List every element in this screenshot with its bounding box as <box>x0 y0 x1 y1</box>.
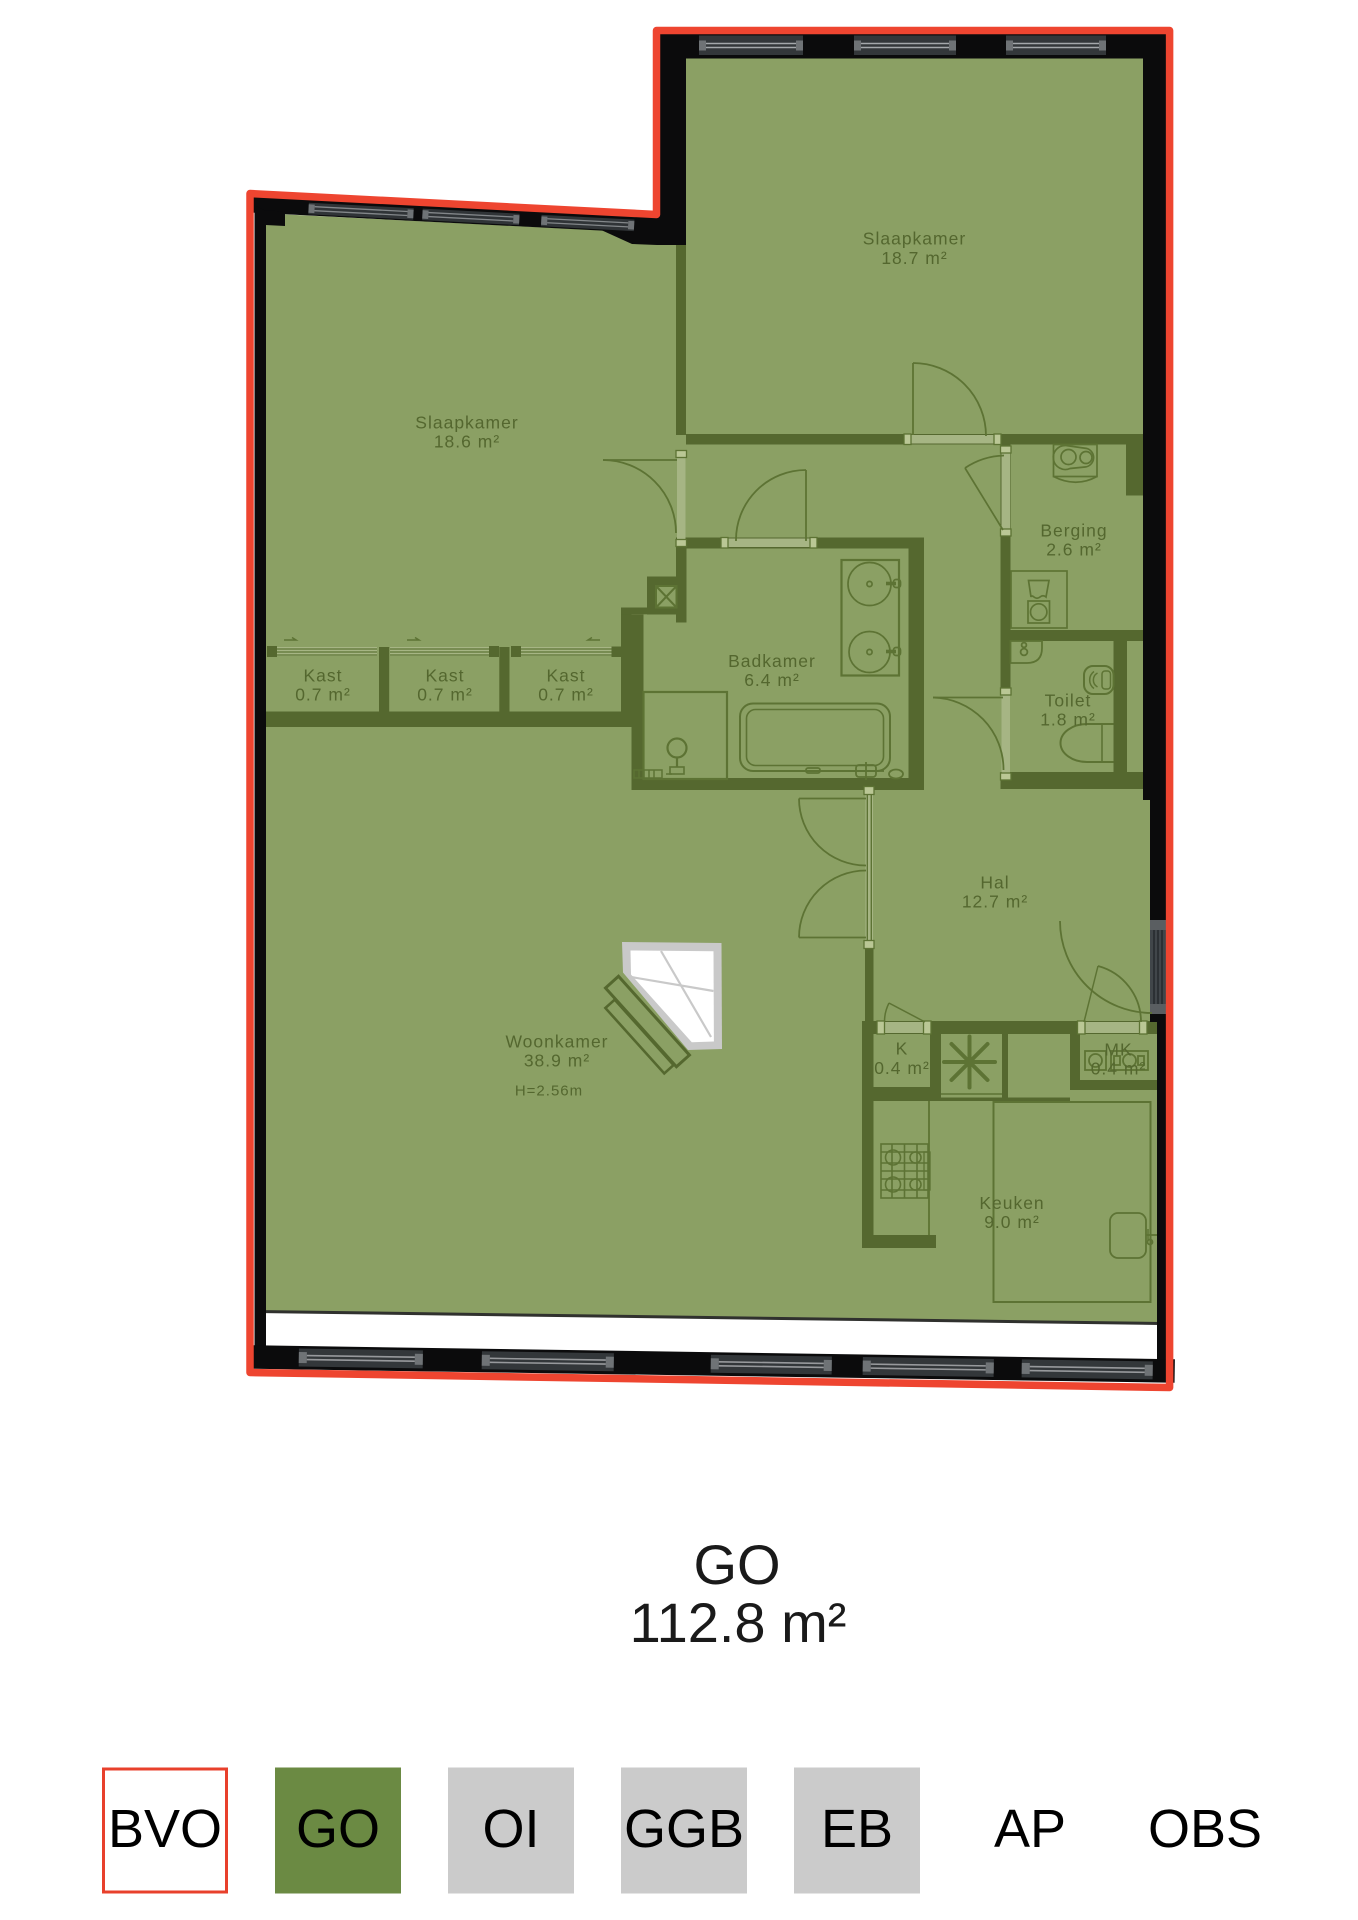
svg-text:18.6 m²: 18.6 m² <box>434 432 500 452</box>
svg-text:1.8 m²: 1.8 m² <box>1040 710 1096 730</box>
svg-text:Keuken: Keuken <box>979 1193 1044 1213</box>
svg-text:BVO: BVO <box>108 1799 222 1859</box>
svg-text:Kast: Kast <box>303 665 342 685</box>
svg-text:Kast: Kast <box>425 665 464 685</box>
svg-text:12.7 m²: 12.7 m² <box>962 892 1028 912</box>
svg-text:Toilet: Toilet <box>1045 690 1092 710</box>
svg-text:EB: EB <box>821 1799 893 1859</box>
svg-text:AP: AP <box>994 1799 1066 1859</box>
svg-text:Slaapkamer: Slaapkamer <box>863 229 966 249</box>
svg-text:Berging: Berging <box>1040 520 1107 540</box>
svg-text:0.7 m²: 0.7 m² <box>538 685 594 705</box>
svg-text:OI: OI <box>482 1799 539 1859</box>
svg-text:K: K <box>896 1038 909 1058</box>
svg-text:0.7 m²: 0.7 m² <box>417 685 473 705</box>
svg-text:Slaapkamer: Slaapkamer <box>415 412 518 432</box>
svg-text:Hal: Hal <box>980 872 1009 892</box>
svg-text:112.8 m²: 112.8 m² <box>630 1591 847 1654</box>
svg-text:H=2.56m: H=2.56m <box>515 1083 583 1100</box>
svg-text:OBS: OBS <box>1148 1799 1262 1859</box>
svg-text:GO: GO <box>693 1533 780 1596</box>
svg-text:Woonkamer: Woonkamer <box>505 1031 608 1051</box>
svg-text:38.9 m²: 38.9 m² <box>524 1051 590 1071</box>
svg-text:2.6 m²: 2.6 m² <box>1046 540 1102 560</box>
svg-text:0.7 m²: 0.7 m² <box>295 685 351 705</box>
svg-text:MK: MK <box>1104 1039 1132 1059</box>
svg-text:0.4 m²: 0.4 m² <box>874 1058 930 1078</box>
svg-text:6.4 m²: 6.4 m² <box>744 670 800 690</box>
svg-text:18.7 m²: 18.7 m² <box>881 248 947 268</box>
svg-text:GO: GO <box>296 1799 380 1859</box>
svg-text:GGB: GGB <box>624 1799 744 1859</box>
svg-text:Badkamer: Badkamer <box>728 651 816 671</box>
svg-text:9.0 m²: 9.0 m² <box>984 1212 1040 1232</box>
svg-text:0.4 m²: 0.4 m² <box>1091 1059 1147 1079</box>
svg-text:Kast: Kast <box>546 665 585 685</box>
